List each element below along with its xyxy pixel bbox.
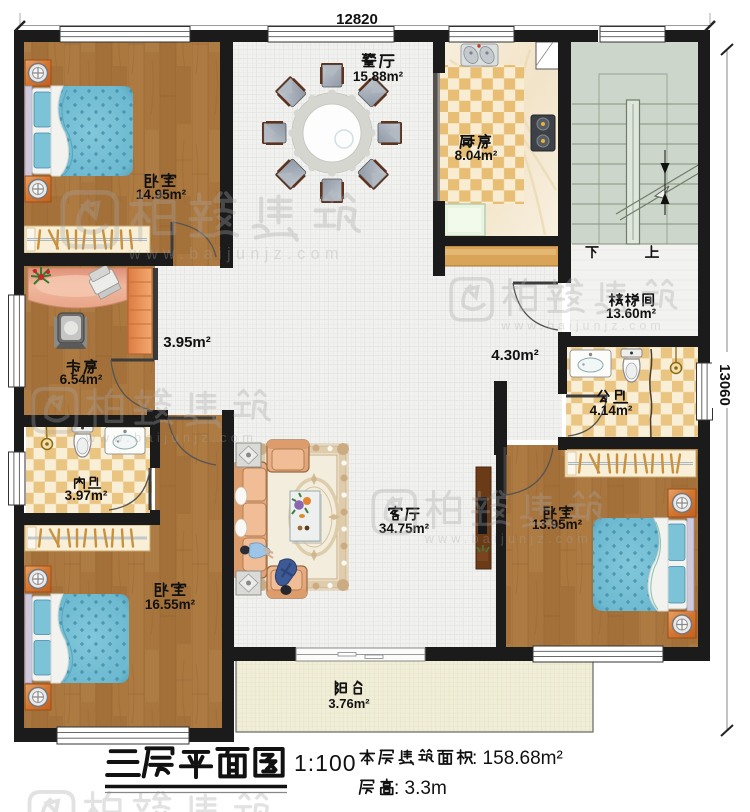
svg-text:3.95m²: 3.95m² [163,334,211,351]
svg-text:12820: 12820 [336,11,378,28]
svg-text:www.baijunjz.com: www.baijunjz.com [500,318,664,332]
svg-text:www.baijunjz.com: www.baijunjz.com [424,532,592,546]
svg-text:8.04m²: 8.04m² [455,148,498,163]
svg-text:13060: 13060 [716,364,733,406]
svg-text:15.88m²: 15.88m² [353,69,404,84]
svg-text:4.30m²: 4.30m² [491,347,539,364]
svg-text:6.54m²: 6.54m² [60,372,103,387]
svg-text:3.97m²: 3.97m² [65,488,108,503]
svg-text:4.14m²: 4.14m² [590,403,633,418]
svg-text:: 3.3m: : 3.3m [394,778,447,799]
svg-text:3.76m²: 3.76m² [328,696,370,711]
svg-text:www.baijunjz.com: www.baijunjz.com [128,245,344,263]
svg-text:: 158.68m²: : 158.68m² [472,748,563,769]
svg-text:1:100: 1:100 [294,750,357,776]
svg-text:www.baijunjz.com: www.baijunjz.com [85,430,257,445]
svg-text:16.55m²: 16.55m² [145,597,196,612]
